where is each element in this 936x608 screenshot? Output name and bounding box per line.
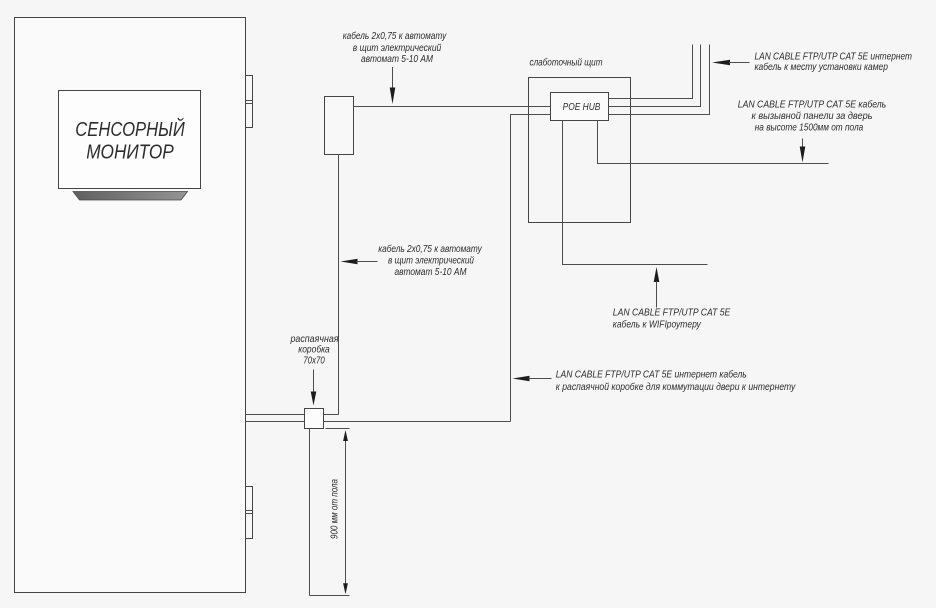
svg-text:автомат 5-10 АМ: автомат 5-10 АМ <box>395 266 467 278</box>
svg-text:к вызывной панели за дверь: к вызывной панели за дверь <box>752 110 873 122</box>
svg-text:LAN CABLE FTP/UTP CAT 5E: LAN CABLE FTP/UTP CAT 5E <box>613 307 731 319</box>
svg-text:слаботочный щит: слаботочный щит <box>530 56 603 68</box>
svg-text:LAN CABLE FTP/UTP CAT 5E инте: LAN CABLE FTP/UTP CAT 5E интернет кабель <box>556 368 747 380</box>
svg-text:кабель 2х0,75 к автомату: кабель 2х0,75 к автомату <box>378 243 482 255</box>
svg-text:POE HUB: POE HUB <box>563 101 601 113</box>
svg-text:70х70: 70х70 <box>303 354 325 366</box>
svg-text:автомат 5-10 АМ: автомат 5-10 АМ <box>361 53 433 65</box>
svg-text:на высоте 1500мм от пола: на высоте 1500мм от пола <box>755 121 864 133</box>
svg-text:900 мм от пола: 900 мм от пола <box>329 479 341 539</box>
svg-text:СЕНСОРНЫЙ: СЕНСОРНЫЙ <box>75 118 185 141</box>
svg-text:кабель к WIFIроутеру: кабель к WIFIроутеру <box>613 319 702 331</box>
svg-text:МОНИТОР: МОНИТОР <box>86 142 174 164</box>
svg-text:кабель 2х0,75 к автомату: кабель 2х0,75 к автомату <box>343 30 447 42</box>
svg-text:в щит электрический: в щит электрический <box>388 254 474 266</box>
svg-text:LAN CABLE FTP/UTP CAT 5E кабел: LAN CABLE FTP/UTP CAT 5E кабель <box>738 99 887 111</box>
svg-text:к распаячной коробке для комму: к распаячной коробке для коммутации двер… <box>556 381 796 393</box>
svg-text:кабель к месту установки камер: кабель к месту установки камер <box>755 61 889 73</box>
